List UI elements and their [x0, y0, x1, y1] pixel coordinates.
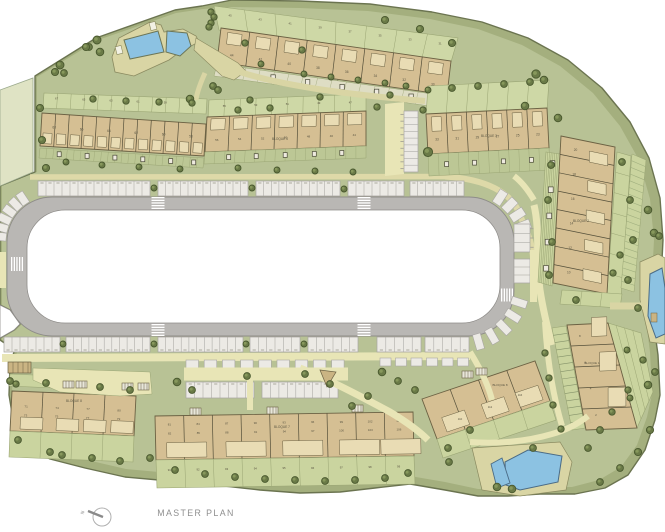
svg-text:79: 79	[117, 417, 121, 421]
svg-text:82: 82	[168, 431, 172, 435]
svg-text:33: 33	[435, 138, 439, 142]
svg-text:33: 33	[408, 37, 412, 41]
svg-text:71: 71	[24, 405, 28, 409]
svg-text:85: 85	[197, 431, 201, 435]
svg-text:54: 54	[238, 137, 242, 141]
svg-text:96: 96	[311, 466, 315, 470]
svg-text:88: 88	[225, 430, 229, 434]
svg-text:98: 98	[368, 465, 372, 469]
svg-text:52: 52	[261, 136, 265, 140]
svg-text:116: 116	[518, 393, 523, 397]
svg-text:12: 12	[568, 246, 572, 250]
svg-text:53: 53	[254, 103, 258, 107]
svg-text:67: 67	[55, 97, 59, 101]
svg-text:48: 48	[307, 135, 311, 139]
svg-text:74: 74	[55, 406, 59, 410]
svg-text:40: 40	[287, 62, 291, 66]
svg-text:110: 110	[458, 417, 463, 421]
svg-text:38: 38	[316, 66, 320, 70]
svg-text:64: 64	[107, 129, 111, 133]
svg-text:99: 99	[340, 420, 344, 424]
svg-text:80: 80	[117, 408, 121, 412]
svg-text:81: 81	[168, 423, 172, 427]
svg-text:93: 93	[282, 421, 286, 425]
svg-text:100: 100	[339, 429, 344, 433]
svg-text:84: 84	[196, 422, 200, 426]
svg-text:31: 31	[438, 41, 442, 45]
svg-text:51: 51	[286, 102, 290, 106]
svg-text:43: 43	[259, 17, 263, 21]
svg-text:27: 27	[496, 135, 500, 139]
svg-text:96: 96	[311, 420, 315, 424]
svg-text:91: 91	[254, 430, 258, 434]
svg-text:112: 112	[488, 405, 493, 409]
svg-text:65: 65	[82, 98, 86, 102]
svg-text:66: 66	[80, 128, 84, 132]
svg-text:97: 97	[311, 429, 315, 433]
svg-text:39: 39	[319, 25, 323, 29]
svg-text:94: 94	[254, 467, 258, 471]
svg-text:77: 77	[86, 407, 90, 411]
svg-text:37: 37	[348, 29, 352, 33]
svg-text:103: 103	[368, 428, 373, 432]
svg-text:73: 73	[24, 413, 28, 417]
svg-text:29: 29	[476, 136, 480, 140]
svg-text:63: 63	[109, 99, 113, 103]
svg-text:23: 23	[536, 133, 540, 137]
svg-text:BLOQUE 7: BLOQUE 7	[274, 425, 290, 429]
svg-text:68: 68	[52, 126, 56, 130]
svg-text:16: 16	[571, 197, 575, 201]
svg-text:36: 36	[345, 70, 349, 74]
svg-text:92: 92	[196, 468, 200, 472]
svg-text:32: 32	[402, 78, 406, 82]
svg-text:59: 59	[164, 101, 168, 105]
svg-text:91: 91	[168, 468, 172, 472]
svg-text:55: 55	[223, 104, 227, 108]
svg-text:20: 20	[574, 148, 578, 152]
svg-text:75: 75	[55, 415, 59, 419]
svg-text:25: 25	[516, 134, 520, 138]
svg-text:44: 44	[353, 133, 357, 137]
svg-text:61: 61	[137, 100, 141, 104]
svg-text:45: 45	[229, 13, 233, 17]
svg-text:97: 97	[340, 465, 344, 469]
svg-text:BLOQUE 1: BLOQUE 1	[584, 361, 599, 365]
svg-text:14: 14	[570, 221, 574, 225]
svg-text:46: 46	[330, 134, 334, 138]
svg-text:47: 47	[349, 100, 353, 104]
svg-text:35: 35	[378, 33, 382, 37]
svg-text:87: 87	[225, 422, 229, 426]
svg-text:106: 106	[396, 428, 401, 432]
svg-text:58: 58	[189, 135, 193, 139]
svg-text:44: 44	[230, 54, 234, 58]
svg-text:56: 56	[215, 138, 219, 142]
svg-text:77: 77	[86, 416, 90, 420]
svg-text:50: 50	[284, 136, 288, 140]
svg-text:95: 95	[282, 466, 286, 470]
svg-text:102: 102	[368, 419, 373, 423]
svg-text:10: 10	[567, 270, 571, 274]
svg-text:49: 49	[317, 101, 321, 105]
svg-text:60: 60	[162, 133, 166, 137]
svg-text:41: 41	[289, 21, 293, 25]
svg-text:34: 34	[374, 74, 378, 78]
svg-text:31: 31	[455, 137, 459, 141]
svg-text:BLOQUE 8: BLOQUE 8	[66, 399, 82, 403]
svg-text:18: 18	[572, 172, 576, 176]
svg-text:93: 93	[225, 467, 229, 471]
svg-text:BLOQUE 2: BLOQUE 2	[573, 219, 589, 223]
svg-text:94: 94	[283, 430, 287, 434]
svg-text:BLOQUE 8: BLOQUE 8	[492, 383, 507, 387]
svg-text:99: 99	[397, 464, 401, 468]
svg-text:MASTER PLAN: MASTER PLAN	[157, 508, 234, 518]
svg-text:90: 90	[254, 421, 258, 425]
svg-text:62: 62	[134, 131, 138, 135]
